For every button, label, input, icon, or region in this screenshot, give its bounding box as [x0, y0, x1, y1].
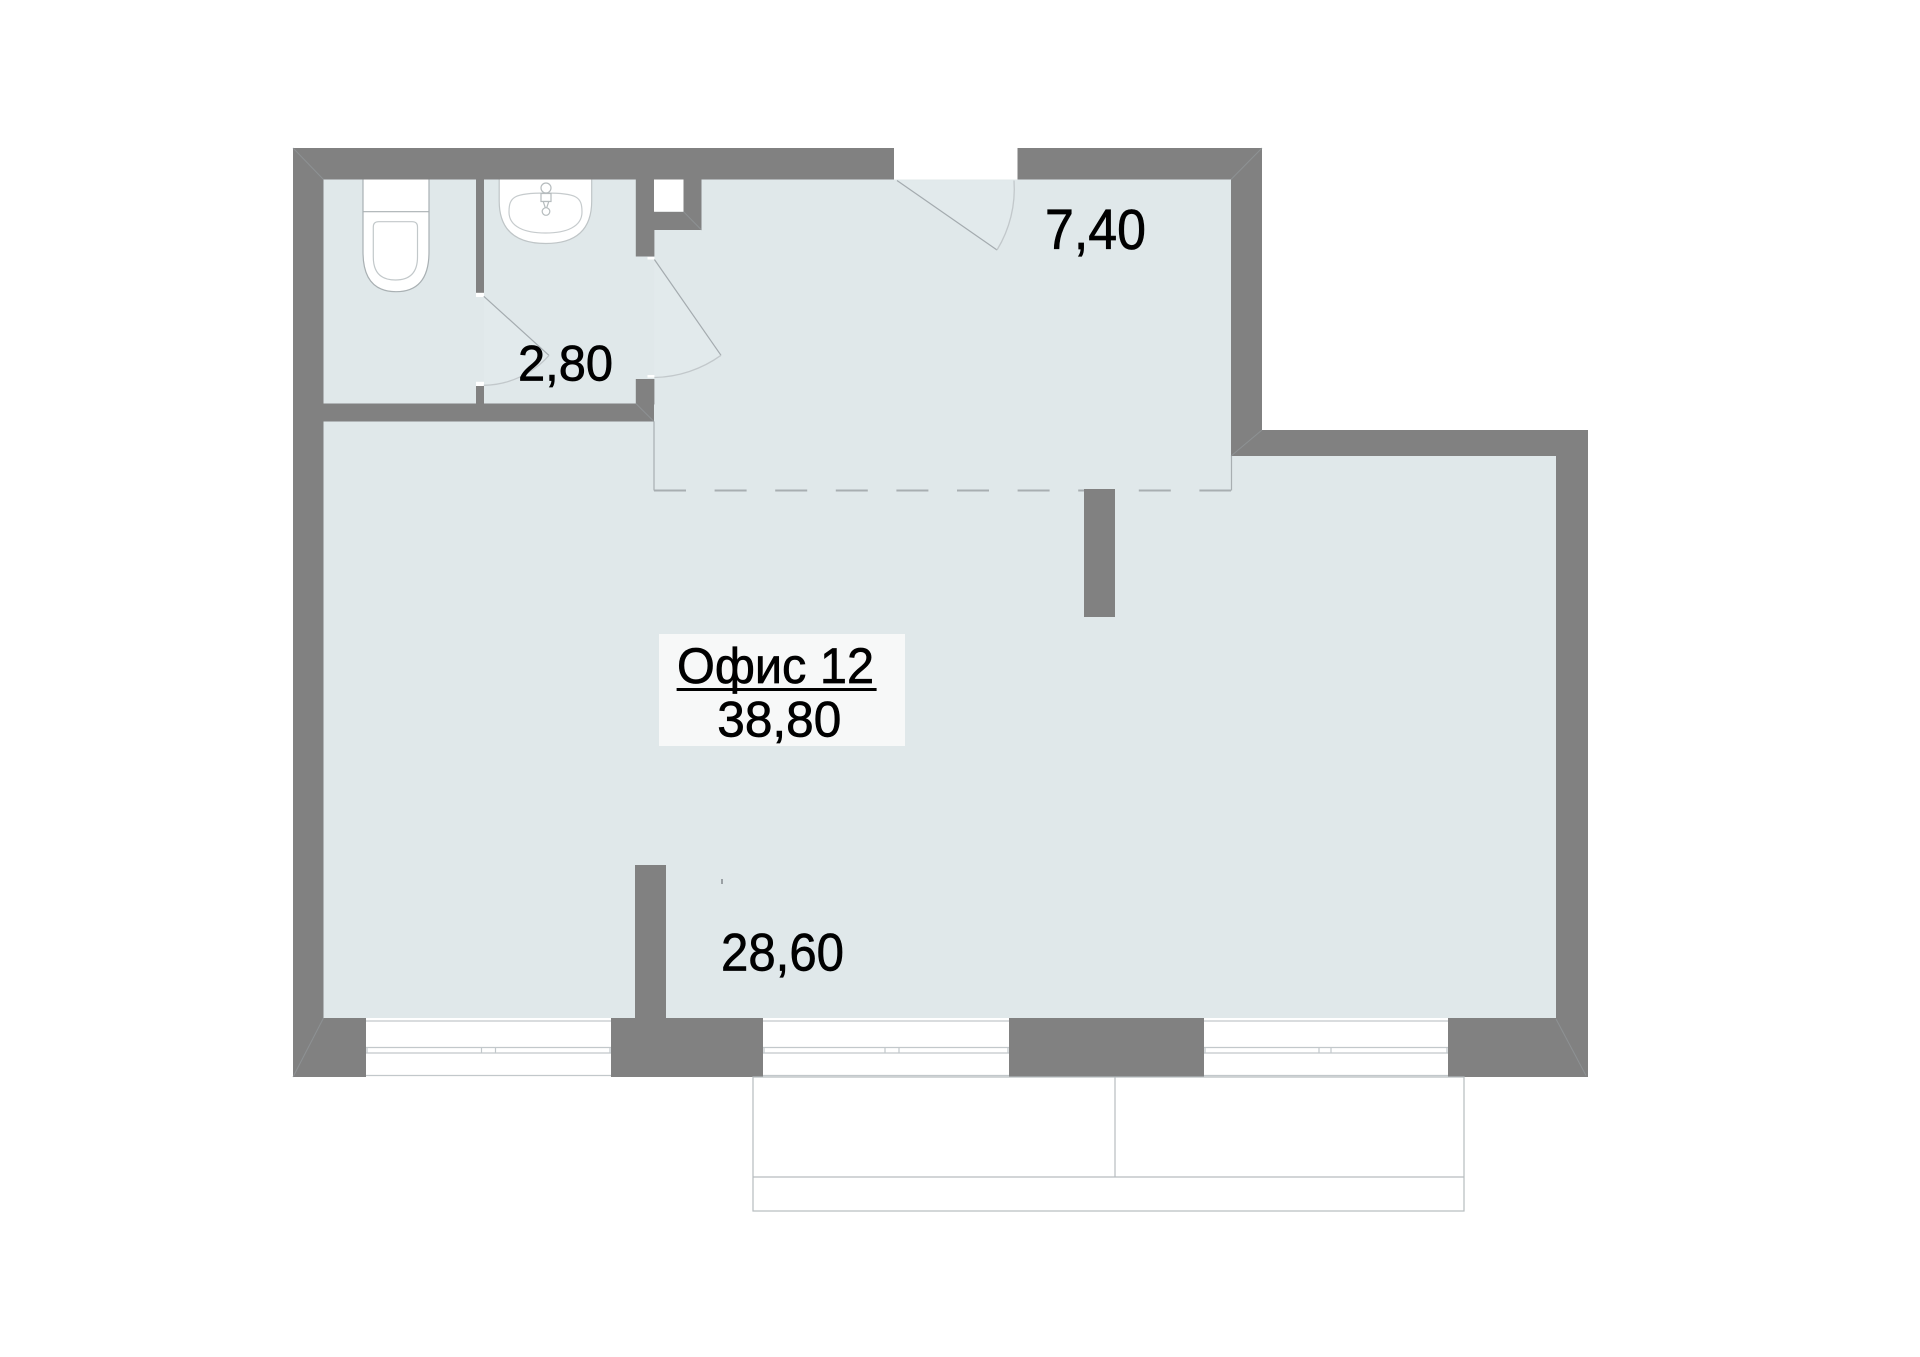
- svg-text:Офис 12: Офис 12: [677, 638, 874, 694]
- svg-text:28,60: 28,60: [721, 924, 844, 983]
- svg-text:7,40: 7,40: [1045, 198, 1146, 262]
- svg-text:38,80: 38,80: [717, 691, 841, 747]
- svg-text:2,80: 2,80: [518, 335, 613, 391]
